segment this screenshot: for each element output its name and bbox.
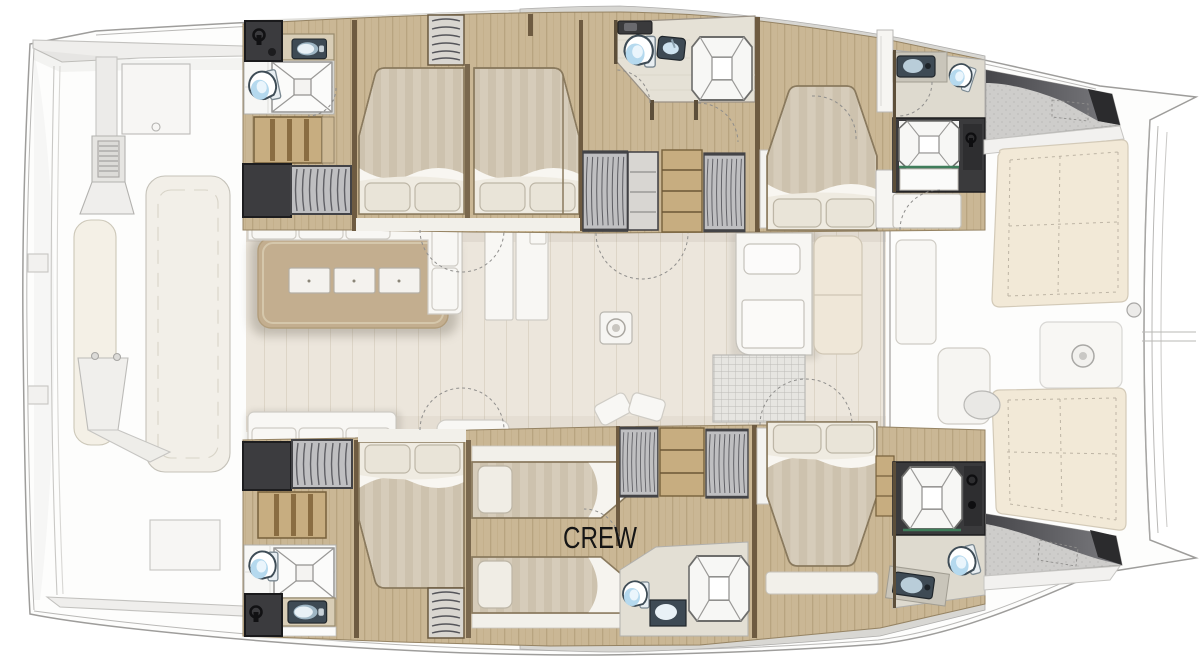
svg-text:CREW: CREW [563,520,638,555]
